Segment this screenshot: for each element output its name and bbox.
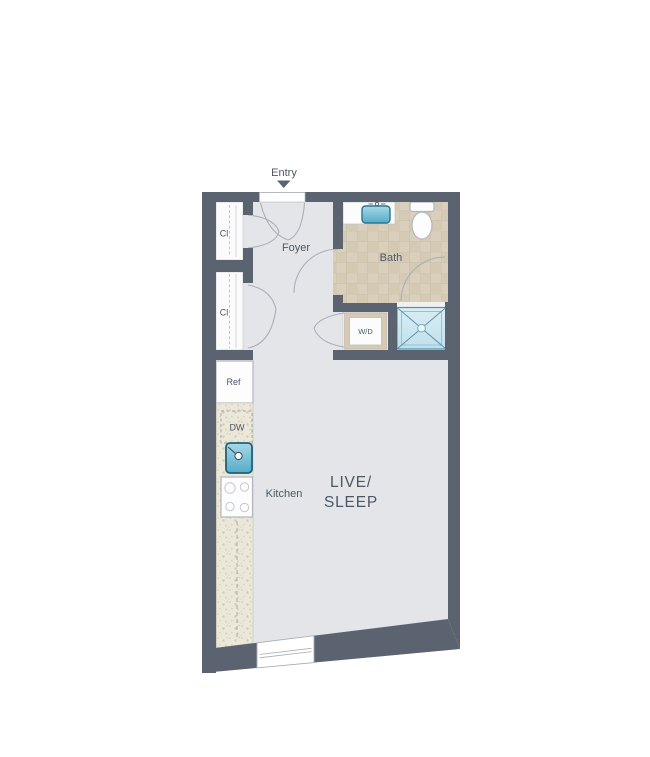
closet-bottom-label: Cl (220, 308, 229, 318)
entry-opening (260, 193, 306, 203)
shower-drain-icon (418, 324, 426, 332)
floorplan-svg: Entry Foyer Bath Cl Cl W/D Ref DW Kitche… (0, 0, 650, 757)
entry-label: Entry (271, 167, 297, 179)
wd-shower-divider-wall (388, 303, 397, 352)
live-sleep-label-line1: LIVE/ (330, 474, 372, 491)
shower-right-sliver-wall (445, 302, 448, 352)
closet-top-label: Cl (220, 229, 229, 239)
wd-label: W/D (358, 327, 373, 336)
niche-south-wall (333, 350, 448, 360)
bath-sink (362, 206, 390, 223)
live-sleep-label-line2: SLEEP (324, 494, 378, 511)
ref-label: Ref (226, 377, 241, 387)
bath-west-wall-upper (333, 202, 343, 249)
kitchen-label: Kitchen (266, 488, 303, 500)
dw-label: DW (230, 423, 245, 433)
wall-right (448, 192, 460, 649)
shower-curb (397, 302, 446, 308)
entry-arrow-icon (277, 181, 291, 189)
wall-left (202, 192, 216, 673)
closet-bottom-wall (216, 350, 253, 360)
bath-south-wall (333, 303, 397, 312)
closet-divider-wall (216, 260, 253, 272)
kitchen-area (216, 361, 253, 648)
shower (397, 302, 446, 349)
kitchen-counter (217, 403, 254, 648)
bath-door-threshold (333, 249, 343, 295)
foyer-label: Foyer (282, 242, 310, 254)
stove (221, 477, 253, 517)
bath-label: Bath (380, 252, 403, 264)
wall-top (202, 192, 460, 202)
floorplan-canvas: Entry Foyer Bath Cl Cl W/D Ref DW Kitche… (0, 0, 650, 757)
closet-stub-top (243, 202, 253, 215)
bath-vanity (343, 202, 395, 224)
toilet (410, 202, 434, 239)
